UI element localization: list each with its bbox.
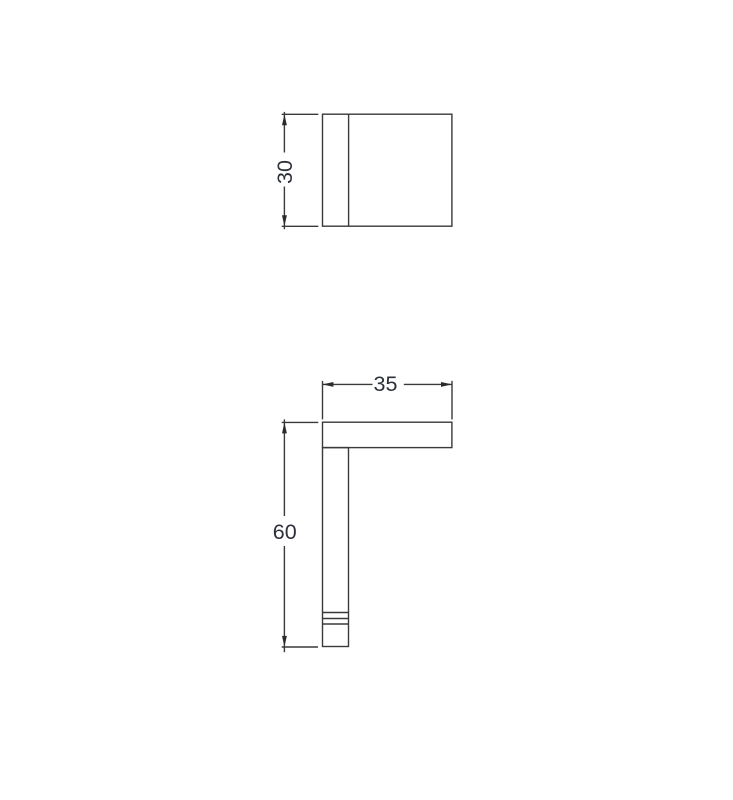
svg-text:60: 60 [273, 520, 297, 544]
svg-text:35: 35 [374, 372, 398, 396]
svg-text:30: 30 [273, 160, 297, 184]
